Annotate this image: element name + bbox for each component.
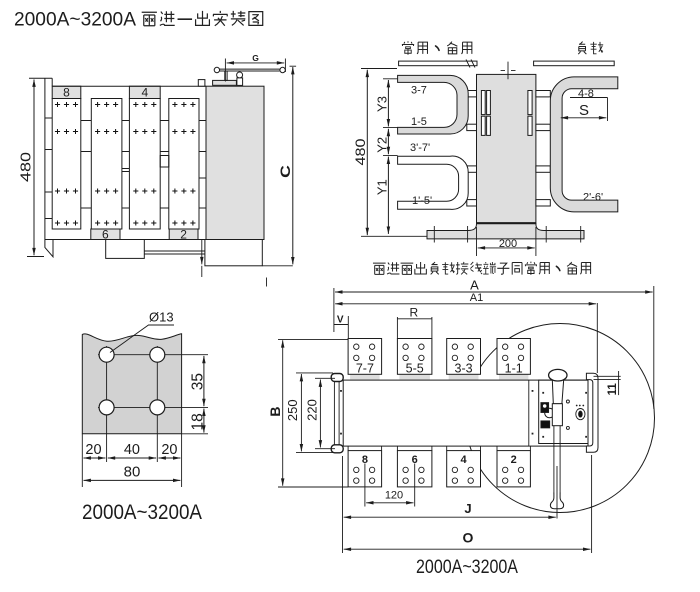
svg-text:O: O (463, 530, 474, 546)
svg-text:C: C (279, 165, 294, 178)
svg-text:80: 80 (124, 464, 141, 481)
svg-text:V: V (337, 315, 344, 326)
svg-text:8: 8 (63, 86, 70, 100)
svg-text:Y1: Y1 (375, 179, 390, 195)
svg-text:2000A~3200A: 2000A~3200A (82, 501, 202, 524)
svg-text:B: B (267, 406, 283, 416)
svg-text:40: 40 (124, 442, 140, 458)
svg-text:18: 18 (189, 413, 206, 430)
svg-text:4: 4 (461, 454, 468, 466)
svg-text:250: 250 (285, 399, 300, 421)
svg-text:G: G (252, 53, 259, 63)
svg-text:3-3: 3-3 (455, 361, 473, 375)
svg-text:20: 20 (161, 442, 177, 458)
svg-text:A1: A1 (470, 292, 483, 304)
svg-text:35: 35 (189, 373, 206, 390)
svg-text:6: 6 (412, 454, 418, 466)
svg-text:11: 11 (607, 383, 619, 396)
svg-text:220: 220 (304, 399, 319, 421)
svg-text:2: 2 (180, 228, 187, 242)
svg-text:7-7: 7-7 (356, 361, 374, 375)
svg-text:J: J (464, 501, 471, 516)
svg-text:4: 4 (141, 86, 148, 100)
svg-text:2000A~3200A: 2000A~3200A (14, 10, 136, 31)
svg-text:2: 2 (511, 454, 517, 466)
svg-text:3'-7': 3'-7' (410, 142, 430, 154)
svg-text:6: 6 (102, 228, 109, 242)
svg-text:480: 480 (18, 152, 35, 182)
svg-text:120: 120 (385, 490, 403, 502)
svg-text:2'-6': 2'-6' (583, 192, 603, 204)
svg-text:2000A~3200A: 2000A~3200A (416, 557, 518, 578)
svg-text:Ø13: Ø13 (149, 310, 174, 325)
svg-text:Y3: Y3 (375, 96, 390, 112)
svg-text:A: A (470, 278, 479, 293)
svg-text:8: 8 (362, 454, 368, 466)
svg-text:Y2: Y2 (375, 137, 390, 153)
svg-text:1'-5': 1'-5' (412, 195, 432, 207)
svg-text:20: 20 (85, 442, 101, 458)
svg-text:5-5: 5-5 (406, 361, 424, 375)
svg-text:S: S (579, 102, 589, 119)
svg-text:480: 480 (352, 138, 368, 165)
svg-text:R: R (409, 306, 418, 320)
svg-text:1-5: 1-5 (411, 116, 427, 128)
svg-text:200: 200 (499, 238, 517, 250)
svg-text:3-7: 3-7 (411, 85, 427, 97)
svg-text:4-8: 4-8 (578, 88, 594, 100)
svg-text:1-1: 1-1 (505, 361, 523, 375)
